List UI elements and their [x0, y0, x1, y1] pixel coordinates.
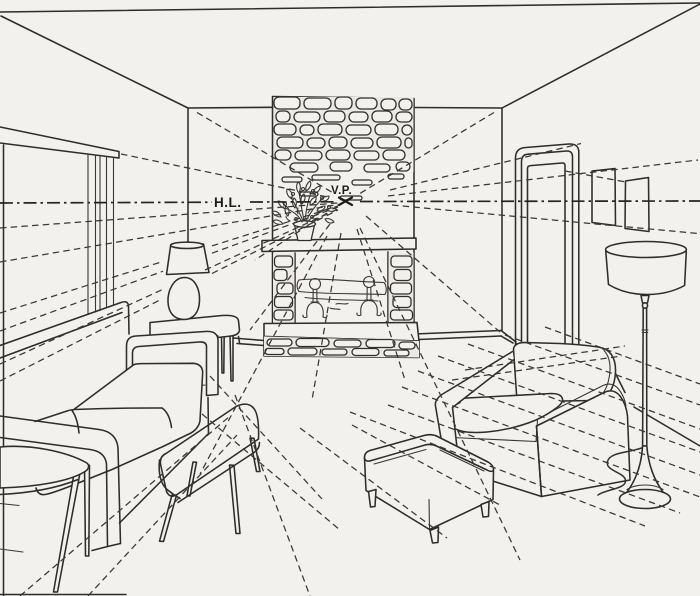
svg-text:H.L.: H.L. [214, 195, 242, 210]
svg-text:V.P.: V.P. [331, 185, 352, 197]
